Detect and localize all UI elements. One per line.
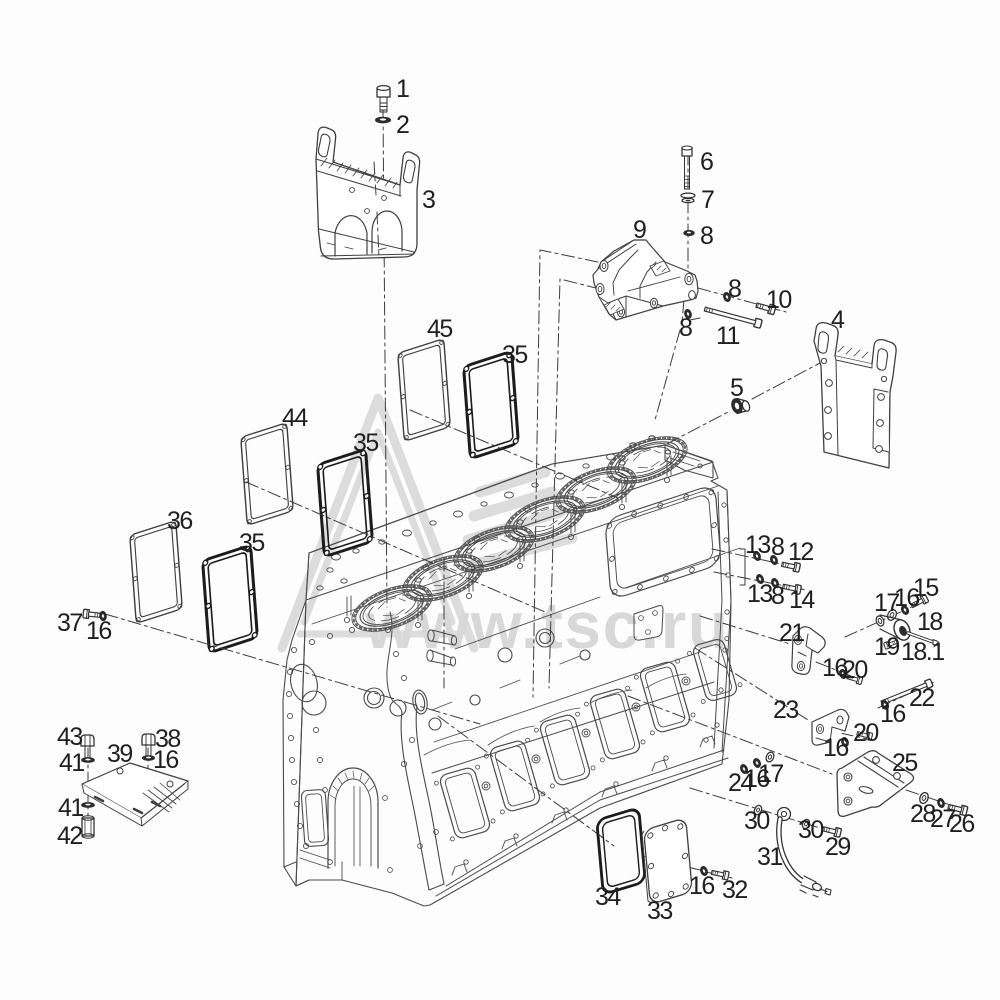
- svg-text:8: 8: [771, 533, 784, 561]
- svg-text:30: 30: [744, 807, 769, 835]
- svg-text:9: 9: [633, 216, 646, 244]
- svg-text:10: 10: [766, 286, 791, 314]
- svg-text:35: 35: [353, 429, 378, 457]
- svg-text:13: 13: [745, 531, 770, 559]
- svg-text:4: 4: [831, 306, 845, 334]
- svg-text:16: 16: [823, 734, 848, 762]
- svg-text:35: 35: [239, 529, 264, 557]
- svg-text:16: 16: [153, 746, 178, 774]
- svg-text:36: 36: [167, 507, 192, 535]
- svg-text:14: 14: [789, 586, 815, 614]
- svg-text:34: 34: [595, 883, 621, 911]
- svg-text:8: 8: [728, 275, 741, 303]
- svg-text:23: 23: [773, 696, 798, 724]
- svg-text:5: 5: [730, 374, 743, 402]
- svg-text:31: 31: [757, 843, 782, 871]
- svg-text:42: 42: [57, 822, 82, 850]
- svg-text:25: 25: [892, 749, 917, 777]
- svg-text:8: 8: [679, 314, 692, 342]
- svg-text:32: 32: [722, 876, 747, 904]
- svg-text:44: 44: [282, 404, 308, 432]
- svg-text:11: 11: [716, 322, 740, 350]
- svg-text:1: 1: [396, 75, 409, 103]
- svg-text:33: 33: [647, 897, 672, 925]
- svg-text:21: 21: [779, 619, 804, 647]
- svg-text:3: 3: [422, 186, 435, 214]
- svg-text:13: 13: [747, 580, 772, 608]
- svg-text:39: 39: [107, 740, 132, 768]
- svg-text:16: 16: [689, 872, 714, 900]
- svg-text:www.tsc.ru: www.tsc.ru: [364, 588, 730, 662]
- svg-text:45: 45: [427, 315, 452, 343]
- svg-text:30: 30: [798, 816, 823, 844]
- svg-text:41: 41: [58, 794, 83, 822]
- svg-text:20: 20: [842, 656, 867, 684]
- svg-text:19: 19: [874, 633, 899, 661]
- svg-text:20: 20: [853, 719, 878, 747]
- svg-text:7: 7: [701, 186, 714, 214]
- svg-text:26: 26: [949, 810, 974, 838]
- svg-text:12: 12: [788, 538, 813, 566]
- svg-text:29: 29: [825, 833, 850, 861]
- svg-text:41: 41: [59, 749, 84, 777]
- svg-text:2: 2: [396, 111, 409, 139]
- svg-text:37: 37: [57, 609, 82, 637]
- svg-text:18.1: 18.1: [901, 638, 944, 666]
- svg-text:8: 8: [771, 582, 784, 610]
- svg-text:16: 16: [86, 617, 111, 645]
- svg-text:22: 22: [909, 684, 934, 712]
- svg-text:16: 16: [880, 700, 905, 728]
- svg-text:8: 8: [700, 222, 713, 250]
- svg-text:16: 16: [894, 584, 919, 612]
- svg-text:35: 35: [502, 341, 527, 369]
- svg-text:6: 6: [700, 148, 713, 176]
- svg-text:43: 43: [57, 723, 82, 751]
- svg-text:18: 18: [917, 608, 942, 636]
- svg-text:17: 17: [758, 760, 783, 788]
